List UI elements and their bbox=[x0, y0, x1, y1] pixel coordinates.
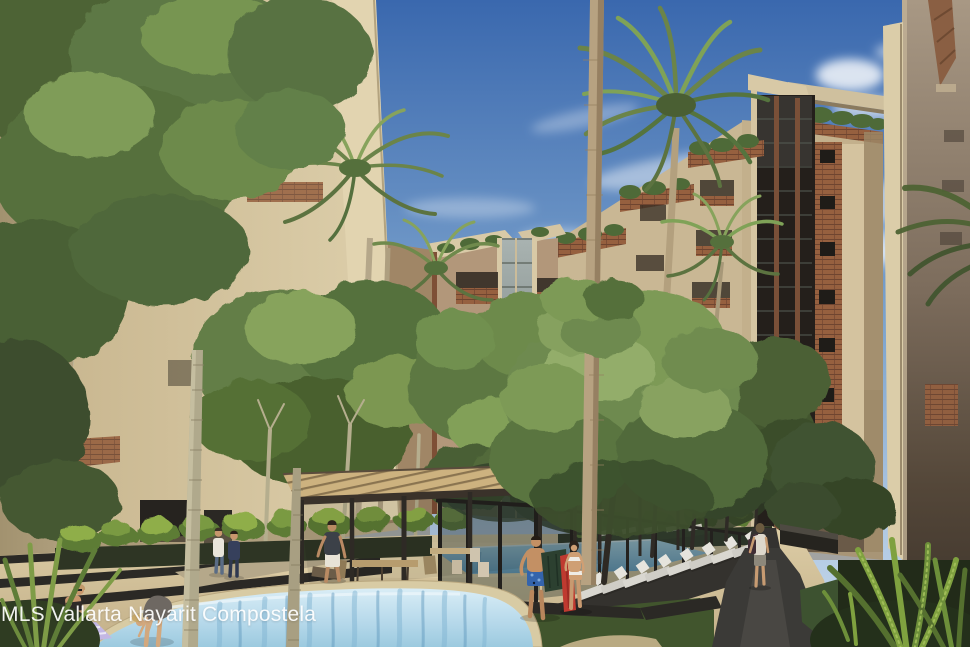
scene-canvas bbox=[0, 0, 970, 647]
rendering-image: MLS Vallarta Nayarit Compostela bbox=[0, 0, 970, 647]
building-right-tower bbox=[902, 0, 970, 647]
